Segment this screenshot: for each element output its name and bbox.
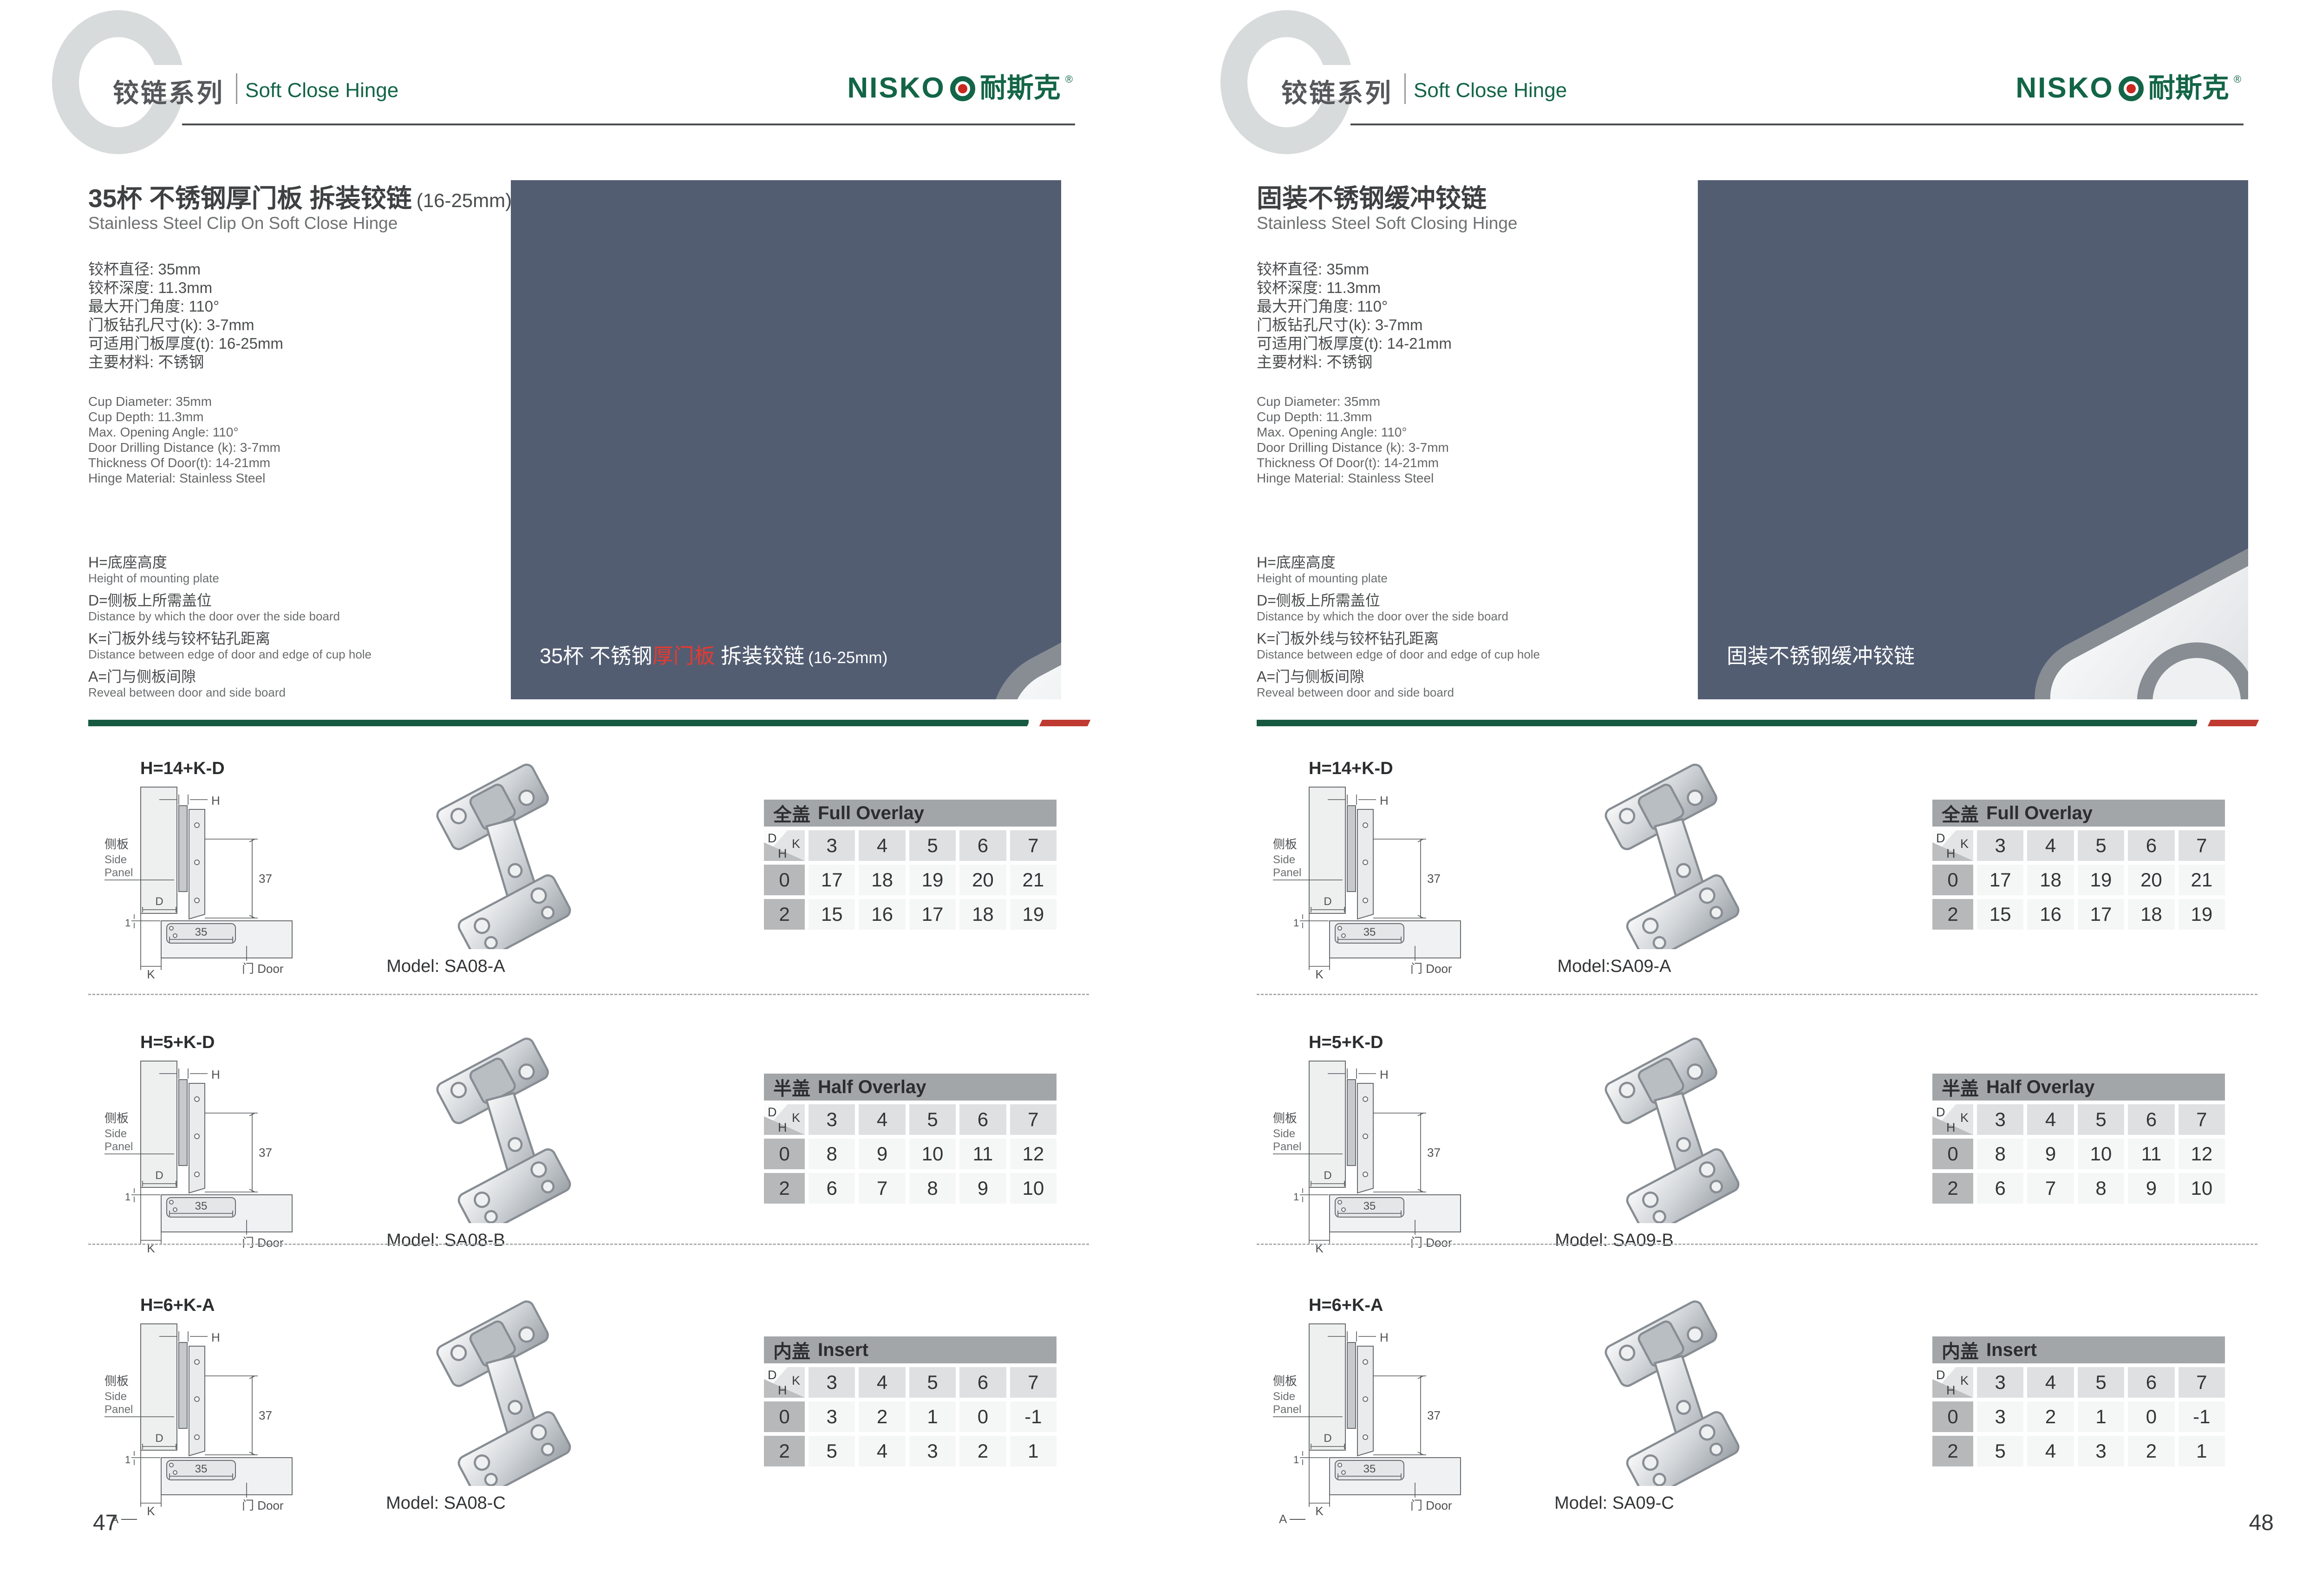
overlay-table: 全盖 Full Overlay D K H 34567 [764, 800, 1057, 930]
k-column-header: 5 [909, 1367, 956, 1398]
overlay-value-cell: 1 [2078, 1401, 2124, 1432]
nisko-logo-target-icon [2119, 76, 2144, 101]
a-dimension-label: A [1279, 1512, 1305, 1526]
hinge-product-image [395, 1300, 590, 1486]
table-title: 半盖 Half Overlay [764, 1074, 1057, 1101]
k-column-header: 3 [1977, 830, 2023, 861]
table-row: 2 1516171819 [764, 899, 1057, 930]
divider-green-bar [1257, 720, 2197, 726]
k-column-header: 3 [809, 830, 855, 861]
table-header-row: D K H 34567 [764, 1367, 1057, 1398]
table-row: 0 89101112 [1932, 1139, 2225, 1169]
overlay-value-cell: 18 [859, 865, 905, 895]
header-rule [182, 124, 1075, 125]
model-number: Model: SA08-B [297, 1231, 594, 1251]
overlay-value-cell: 10 [909, 1139, 956, 1169]
overlay-value-cell: 6 [1977, 1173, 2023, 1204]
hinge-product-image [1563, 1300, 1758, 1486]
section-divider [1257, 720, 2257, 726]
overlay-value-cell: 19 [909, 865, 956, 895]
spec-line: Cup Diameter: 35mm [1257, 394, 1449, 409]
k-column-header: 4 [2027, 830, 2074, 861]
overlay-value-cell: 18 [2128, 899, 2174, 930]
spec-line: 铰杯直径: 35mm [88, 260, 283, 279]
series-title-cn: 铰链系列 [1281, 72, 1393, 110]
nisko-logo: NISKO 耐斯克 ® [2015, 70, 2241, 108]
legend-item: K=门板外线与铰杯钻孔距离 Distance between edge of d… [1257, 630, 1702, 661]
table-corner-dkh: D K H [1932, 830, 1973, 861]
installation-diagram [104, 1053, 304, 1252]
overlay-value-cell: 1 [1010, 1436, 1057, 1466]
overlay-value-cell: 7 [2027, 1173, 2074, 1204]
k-column-header: 3 [1977, 1104, 2023, 1135]
spec-line: 铰杯直径: 35mm [1257, 260, 1452, 279]
overlay-value-cell: 17 [2078, 899, 2124, 930]
overlay-table: 半盖 Half Overlay D K H 34567 [1932, 1074, 2225, 1204]
table-row: 2 54321 [1932, 1436, 2225, 1466]
k-column-header: 4 [2027, 1367, 2074, 1398]
k-column-header: 7 [1010, 1104, 1057, 1135]
mounting-height-formula: H=6+K-A [140, 1296, 215, 1316]
legend-item: H=底座高度 Height of mounting plate [88, 554, 534, 585]
mounting-height-formula: H=5+K-D [1309, 1033, 1383, 1053]
dashed-divider [88, 994, 1089, 995]
overlay-value-cell: -1 [1010, 1401, 1057, 1432]
installation-diagram [104, 779, 304, 978]
overlay-value-cell: 8 [2078, 1173, 2124, 1204]
mounting-height-formula: H=6+K-A [1309, 1296, 1383, 1316]
photo-caption-red: 厚门板 [652, 644, 715, 668]
series-title-en: Soft Close Hinge [1414, 79, 1567, 102]
k-column-header: 7 [2179, 1104, 2225, 1135]
catalog-page: 铰链系列 Soft Close Hinge NISKO 耐斯克 ® 35杯 不锈… [0, 0, 1168, 1596]
divider-green-bar [88, 720, 1029, 726]
overlay-value-cell: 16 [2027, 899, 2074, 930]
table-row: 2 678910 [1932, 1173, 2225, 1204]
k-column-header: 6 [2128, 830, 2174, 861]
overlay-value-cell: 21 [1010, 865, 1057, 895]
h-row-header: 2 [1932, 899, 1973, 930]
installation-diagram [1273, 779, 1473, 978]
hinge-photo-illustration [1698, 180, 2248, 699]
overlay-value-cell: 15 [1977, 899, 2023, 930]
overlay-value-cell: 10 [2179, 1173, 2225, 1204]
k-column-header: 5 [909, 830, 956, 861]
spec-line: Hinge Material: Stainless Steel [88, 470, 280, 486]
overlay-value-cell: 3 [1977, 1401, 2023, 1432]
hinge-product-image [1563, 763, 1758, 949]
k-column-header: 7 [1010, 1367, 1057, 1398]
table-row: 2 1516171819 [1932, 899, 2225, 930]
k-column-header: 4 [859, 1104, 905, 1135]
overlay-value-cell: 8 [1977, 1139, 2023, 1169]
k-column-header: 7 [1010, 830, 1057, 861]
legend-item: D=侧板上所需盖位 Distance by which the door ove… [88, 592, 534, 623]
nisko-logo: NISKO 耐斯克 ® [847, 70, 1073, 108]
k-column-header: 7 [2179, 830, 2225, 861]
table-corner-dkh: D K H [764, 1104, 805, 1135]
installation-diagram [1273, 1053, 1473, 1252]
registered-trademark-icon: ® [2234, 73, 2241, 85]
divider-red-bar [1039, 720, 1091, 726]
spec-line: 门板钻孔尺寸(k): 3-7mm [88, 316, 283, 334]
k-column-header: 3 [1977, 1367, 2023, 1398]
series-title-en: Soft Close Hinge [245, 79, 398, 102]
specs-en: Cup Diameter: 35mm Cup Depth: 11.3mm Max… [1257, 394, 1449, 486]
k-column-header: 3 [809, 1367, 855, 1398]
overlay-value-cell: 17 [809, 865, 855, 895]
model-number: Model: SA08-A [297, 957, 594, 977]
variant-section-full-overlay: H=14+K-D A Model:SA09-A 全盖 Full Overlay … [1257, 758, 2250, 1009]
photo-caption: 35杯 不锈钢厚门板 拆装铰链(16-25mm) [540, 639, 887, 669]
overlay-value-cell: 9 [2128, 1173, 2174, 1204]
specs-en: Cup Diameter: 35mm Cup Depth: 11.3mm Max… [88, 394, 280, 486]
product-title-en: Stainless Steel Soft Closing Hinge [1257, 214, 1517, 233]
model-number: Model: SA09-C [1466, 1493, 1763, 1513]
divider-red-bar [2208, 720, 2259, 726]
k-column-header: 5 [909, 1104, 956, 1135]
photo-caption-suffix: (16-25mm) [808, 649, 887, 667]
h-row-header: 0 [764, 1401, 805, 1432]
dashed-divider [88, 1244, 1089, 1245]
spec-line: 主要材料: 不锈钢 [88, 353, 283, 371]
variant-section-full-overlay: H=14+K-D A Model: SA08-A 全盖 Full Overlay… [88, 758, 1082, 1009]
spec-line: 主要材料: 不锈钢 [1257, 353, 1452, 371]
h-row-header: 2 [1932, 1173, 1973, 1204]
table-title: 内盖 Insert [764, 1336, 1057, 1363]
k-column-header: 6 [2128, 1104, 2174, 1135]
h-row-header: 0 [764, 1139, 805, 1169]
overlay-value-cell: 12 [1010, 1139, 1057, 1169]
hinge-product-image [395, 763, 590, 949]
h-row-header: 2 [764, 1173, 805, 1204]
registered-trademark-icon: ® [1065, 73, 1073, 85]
overlay-value-cell: 4 [2027, 1436, 2074, 1466]
header-rule [1350, 124, 2244, 125]
hinge-product-image [395, 1037, 590, 1223]
spec-line: Max. Opening Angle: 110° [1257, 424, 1449, 440]
overlay-value-cell: 2 [2027, 1401, 2074, 1432]
nisko-logo-target-icon [950, 76, 975, 101]
overlay-value-cell: 10 [2078, 1139, 2124, 1169]
table-row: 0 89101112 [764, 1139, 1057, 1169]
h-row-header: 2 [1932, 1436, 1973, 1466]
h-row-header: 0 [1932, 865, 1973, 895]
k-column-header: 4 [859, 1367, 905, 1398]
table-row: 0 3210-1 [1932, 1401, 2225, 1432]
overlay-value-cell: 7 [859, 1173, 905, 1204]
overlay-value-cell: 19 [2179, 899, 2225, 930]
table-row: 2 678910 [764, 1173, 1057, 1204]
overlay-value-cell: 5 [809, 1436, 855, 1466]
spec-line: 铰杯深度: 11.3mm [88, 279, 283, 297]
nisko-logo-cjk: 耐斯克 [2148, 70, 2229, 107]
overlay-table: 半盖 Half Overlay D K H 34567 [764, 1074, 1057, 1204]
product-photo: 35杯 不锈钢厚门板 拆装铰链(16-25mm) [511, 180, 1061, 699]
legend-item: A=门与侧板间隙 Reveal between door and side bo… [1257, 668, 1702, 699]
k-column-header: 4 [859, 830, 905, 861]
series-separator [1404, 73, 1406, 104]
overlay-value-cell: 19 [1010, 899, 1057, 930]
spec-line: Cup Diameter: 35mm [88, 394, 280, 409]
spec-line: Door Drilling Distance (k): 3-7mm [88, 440, 280, 455]
spec-line: 可适用门板厚度(t): 14-21mm [1257, 334, 1452, 353]
overlay-value-cell: 16 [859, 899, 905, 930]
mounting-height-formula: H=14+K-D [1309, 759, 1393, 779]
spec-line: Thickness Of Door(t): 14-21mm [1257, 455, 1449, 470]
legend-item: D=侧板上所需盖位 Distance by which the door ove… [1257, 592, 1702, 623]
table-row: 0 1718192021 [1932, 865, 2225, 895]
specs-cn: 铰杯直径: 35mm 铰杯深度: 11.3mm 最大开门角度: 110° 门板钻… [1257, 260, 1452, 371]
overlay-value-cell: 9 [2027, 1139, 2074, 1169]
photo-caption: 固装不锈钢缓冲铰链 [1727, 639, 1918, 669]
overlay-value-cell: 4 [859, 1436, 905, 1466]
h-row-header: 2 [764, 1436, 805, 1466]
product-title-cn: 固装不锈钢缓冲铰链 [1257, 177, 1491, 215]
variant-section-insert: H=6+K-A A Model: SA09-C 内盖 Insert D K [1257, 1295, 2250, 1545]
spec-line: Max. Opening Angle: 110° [88, 424, 280, 440]
section-divider [88, 720, 1089, 726]
overlay-value-cell: 10 [1010, 1173, 1057, 1204]
overlay-value-cell: 2 [959, 1436, 1006, 1466]
overlay-value-cell: 2 [859, 1401, 905, 1432]
table-corner-dkh: D K H [1932, 1367, 1973, 1398]
k-column-header: 5 [2078, 830, 2124, 861]
overlay-table: 内盖 Insert D K H 34567 0 [764, 1336, 1057, 1466]
nisko-logo-cjk: 耐斯克 [980, 70, 1061, 107]
nisko-logo-latin: NISKO [2015, 70, 2113, 107]
overlay-value-cell: 18 [2027, 865, 2074, 895]
table-title: 全盖 Full Overlay [764, 800, 1057, 827]
overlay-value-cell: 18 [959, 899, 1006, 930]
dashed-divider [1257, 994, 2257, 995]
model-number: Model: SA09-B [1466, 1231, 1763, 1251]
dimension-legend: H=底座高度 Height of mounting plate D=侧板上所需盖… [88, 554, 534, 706]
table-header-row: D K H 34567 [764, 830, 1057, 861]
table-title: 全盖 Full Overlay [1932, 800, 2225, 827]
mounting-height-formula: H=14+K-D [140, 759, 225, 779]
k-column-header: 6 [959, 830, 1006, 861]
nisko-logo-latin: NISKO [847, 70, 945, 107]
spec-line: 铰杯深度: 11.3mm [1257, 279, 1452, 297]
overlay-value-cell: 8 [809, 1139, 855, 1169]
k-column-header: 6 [959, 1367, 1006, 1398]
table-title: 内盖 Insert [1932, 1336, 2225, 1363]
overlay-value-cell: 20 [2128, 865, 2174, 895]
k-column-header: 7 [2179, 1367, 2225, 1398]
spec-line: Hinge Material: Stainless Steel [1257, 470, 1449, 486]
product-title-en: Stainless Steel Clip On Soft Close Hinge [88, 214, 398, 233]
table-corner-dkh: D K H [1932, 1104, 1973, 1135]
overlay-value-cell: 3 [809, 1401, 855, 1432]
overlay-value-cell: 17 [909, 899, 956, 930]
overlay-value-cell: 1 [909, 1401, 956, 1432]
h-row-header: 2 [764, 899, 805, 930]
k-column-header: 5 [2078, 1104, 2124, 1135]
k-column-header: 3 [809, 1104, 855, 1135]
overlay-value-cell: 9 [859, 1139, 905, 1169]
legend-item: H=底座高度 Height of mounting plate [1257, 554, 1702, 585]
overlay-value-cell: 11 [2128, 1139, 2174, 1169]
model-number: Model: SA08-C [297, 1493, 594, 1513]
overlay-value-cell: 3 [2078, 1436, 2124, 1466]
overlay-value-cell: 20 [959, 865, 1006, 895]
overlay-value-cell: 0 [2128, 1401, 2174, 1432]
table-title: 半盖 Half Overlay [1932, 1074, 2225, 1101]
variant-section-half-overlay: H=5+K-D A Model: SA09-B 半盖 Half Overlay … [1257, 1032, 2250, 1283]
k-column-header: 5 [2078, 1367, 2124, 1398]
overlay-value-cell: 6 [809, 1173, 855, 1204]
spec-line: Door Drilling Distance (k): 3-7mm [1257, 440, 1449, 455]
model-number: Model:SA09-A [1466, 957, 1763, 977]
overlay-value-cell: 15 [809, 899, 855, 930]
table-header-row: D K H 34567 [1932, 1367, 2225, 1398]
series-separator [236, 73, 237, 104]
spec-line: Thickness Of Door(t): 14-21mm [88, 455, 280, 470]
installation-diagram [1273, 1316, 1473, 1515]
overlay-value-cell: 19 [2078, 865, 2124, 895]
overlay-value-cell: 0 [959, 1401, 1006, 1432]
table-header-row: D K H 34567 [764, 1104, 1057, 1135]
product-photo: 固装不锈钢缓冲铰链 [1698, 180, 2248, 699]
overlay-table: 全盖 Full Overlay D K H 34567 [1932, 800, 2225, 930]
page-number: 47 [93, 1510, 117, 1536]
catalog-page: 铰链系列 Soft Close Hinge NISKO 耐斯克 ® 固装不锈钢缓… [1168, 0, 2322, 1596]
hinge-product-image [1563, 1037, 1758, 1223]
legend-item: A=门与侧板间隙 Reveal between door and side bo… [88, 668, 534, 699]
product-title-cn: 35杯 不锈钢厚门板 拆装铰链(16-25mm) [88, 177, 512, 215]
product-title-suffix: (16-25mm) [417, 189, 512, 211]
spec-line: Cup Depth: 11.3mm [1257, 409, 1449, 424]
overlay-value-cell: 9 [959, 1173, 1006, 1204]
h-row-header: 0 [1932, 1401, 1973, 1432]
spec-line: 门板钻孔尺寸(k): 3-7mm [1257, 316, 1452, 334]
k-column-header: 6 [959, 1104, 1006, 1135]
specs-cn: 铰杯直径: 35mm 铰杯深度: 11.3mm 最大开门角度: 110° 门板钻… [88, 260, 283, 371]
overlay-value-cell: -1 [2179, 1401, 2225, 1432]
dashed-divider [1257, 1244, 2257, 1245]
dimension-legend: H=底座高度 Height of mounting plate D=侧板上所需盖… [1257, 554, 1702, 706]
mounting-height-formula: H=5+K-D [140, 1033, 215, 1053]
page-number: 48 [2249, 1510, 2274, 1536]
h-row-header: 0 [1932, 1139, 1973, 1169]
installation-diagram [104, 1316, 304, 1515]
table-header-row: D K H 34567 [1932, 1104, 2225, 1135]
overlay-value-cell: 8 [909, 1173, 956, 1204]
hinge-photo-illustration [511, 180, 1061, 699]
overlay-value-cell: 21 [2179, 865, 2225, 895]
table-corner-dkh: D K H [764, 1367, 805, 1398]
overlay-value-cell: 12 [2179, 1139, 2225, 1169]
spec-line: 最大开门角度: 110° [1257, 297, 1452, 316]
h-row-header: 0 [764, 865, 805, 895]
table-corner-dkh: D K H [764, 830, 805, 861]
overlay-value-cell: 3 [909, 1436, 956, 1466]
overlay-value-cell: 2 [2128, 1436, 2174, 1466]
table-row: 0 3210-1 [764, 1401, 1057, 1432]
spec-line: 最大开门角度: 110° [88, 297, 283, 316]
series-title-cn: 铰链系列 [113, 72, 224, 110]
legend-item: K=门板外线与铰杯钻孔距离 Distance between edge of d… [88, 630, 534, 661]
table-header-row: D K H 34567 [1932, 830, 2225, 861]
overlay-value-cell: 1 [2179, 1436, 2225, 1466]
variant-section-half-overlay: H=5+K-D A Model: SA08-B 半盖 Half Overlay … [88, 1032, 1082, 1283]
overlay-table: 内盖 Insert D K H 34567 0 [1932, 1336, 2225, 1466]
table-row: 0 1718192021 [764, 865, 1057, 895]
k-column-header: 4 [2027, 1104, 2074, 1135]
overlay-value-cell: 17 [1977, 865, 2023, 895]
overlay-value-cell: 11 [959, 1139, 1006, 1169]
overlay-value-cell: 5 [1977, 1436, 2023, 1466]
spec-line: 可适用门板厚度(t): 16-25mm [88, 334, 283, 353]
spec-line: Cup Depth: 11.3mm [88, 409, 280, 424]
k-column-header: 6 [2128, 1367, 2174, 1398]
variant-section-insert: H=6+K-A A Model: SA08-C 内盖 Insert D K [88, 1295, 1082, 1545]
table-row: 2 54321 [764, 1436, 1057, 1466]
